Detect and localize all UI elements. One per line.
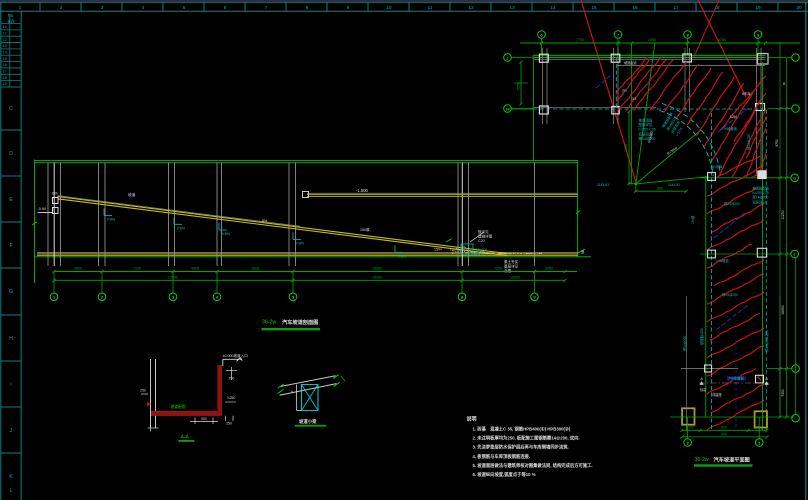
svg-text:标高: 标高: [700, 387, 706, 392]
svg-text:1.1: 1.1: [2, 31, 7, 35]
svg-text:3: 3: [758, 441, 760, 445]
svg-text:250: 250: [226, 422, 232, 426]
svg-text:1: 1: [19, 5, 22, 10]
svg-text:鄏14@200: 鄏14@200: [724, 201, 740, 206]
svg-text:h250: h250: [228, 396, 236, 400]
svg-text:4400: 4400: [191, 267, 199, 271]
svg-text:7600: 7600: [251, 267, 259, 271]
svg-text:I: I: [10, 382, 11, 388]
svg-text:12: 12: [468, 5, 474, 10]
svg-text:2050: 2050: [648, 38, 656, 42]
svg-text:16900: 16900: [372, 267, 382, 271]
svg-text:6: 6: [224, 5, 227, 10]
svg-text:J: J: [507, 56, 509, 60]
svg-text:±0.000坡道入口: ±0.000坡道入口: [223, 353, 249, 358]
svg-text:1.9: 1.9: [2, 82, 7, 86]
svg-text:2: 2: [687, 441, 689, 445]
svg-text:C20: C20: [478, 239, 485, 243]
svg-text:i=8%: i=8%: [398, 254, 407, 258]
svg-text:6. 坡道纵向坡度,弧度点于等10 %: 6. 坡道纵向坡度,弧度点于等10 %: [473, 471, 536, 478]
svg-text:坡道起点: 坡道起点: [624, 60, 638, 65]
svg-text:7%坡道板: 7%坡道板: [722, 126, 738, 131]
svg-text:6750: 6750: [718, 38, 726, 42]
svg-text:B车库: B车库: [742, 91, 751, 96]
svg-text:650: 650: [657, 187, 663, 191]
svg-text:h: h: [291, 390, 293, 394]
svg-text:15: 15: [591, 5, 597, 10]
svg-text:3050: 3050: [545, 267, 553, 271]
svg-text:4800: 4800: [74, 267, 82, 271]
svg-text:鄏14@200: 鄏14@200: [682, 335, 687, 351]
svg-text:1.6: 1.6: [2, 63, 7, 67]
svg-text:素土夯实: 素土夯实: [504, 259, 519, 264]
svg-text:基层详见: 基层详见: [504, 264, 519, 269]
svg-text:500: 500: [201, 417, 207, 421]
svg-text:鄏8: 鄏8: [622, 88, 627, 93]
svg-text:1. 砖基 混凝土C 35, 钢筋HPB400(①) HPB: 1. 砖基 混凝土C 35, 钢筋HPB400(①) HPB300(②): [473, 426, 571, 433]
svg-text:20: 20: [796, 5, 802, 10]
svg-text:说明: 说明: [467, 416, 477, 423]
svg-text:C: C: [9, 106, 13, 112]
svg-text:5: 5: [183, 5, 186, 10]
svg-text:16: 16: [632, 5, 638, 10]
svg-text:坡道板配筋: 坡道板配筋: [753, 186, 770, 191]
svg-text:h250: h250: [730, 115, 737, 119]
svg-text:36-2w: 36-2w: [262, 320, 276, 326]
svg-text:8: 8: [306, 5, 309, 10]
svg-text:1.35坡道: 1.35坡道: [716, 258, 729, 263]
svg-text:i=8%: i=8%: [107, 217, 116, 221]
svg-text:更改: 更改: [7, 19, 15, 24]
svg-text:鄏14@200双向: 鄏14@200双向: [764, 330, 769, 352]
svg-text:11250: 11250: [781, 210, 785, 219]
svg-text:4: 4: [142, 5, 145, 10]
svg-text:坡道配筋: 坡道配筋: [171, 404, 186, 409]
svg-text:9: 9: [347, 5, 350, 10]
svg-text:No.: No.: [8, 13, 15, 18]
svg-text:坡道顶板: 坡道顶板: [639, 118, 653, 123]
svg-text:5. 坡道面层做法与建筑师核对图集做法同, 结构完成后方可施: 5. 坡道面层做法与建筑师核对图集做法同, 结构完成后方可施工.: [473, 462, 593, 469]
svg-text:7: 7: [265, 5, 268, 10]
svg-text:G: G: [9, 289, 13, 295]
svg-text:7%坡道板: 7%坡道板: [728, 376, 744, 381]
svg-text:9: 9: [757, 33, 759, 37]
svg-text:鄏14@150: 鄏14@150: [746, 134, 751, 150]
svg-text:250: 250: [229, 377, 235, 381]
svg-text:250: 250: [140, 389, 146, 393]
svg-text:8: 8: [461, 296, 463, 300]
svg-text:8%: 8%: [52, 191, 58, 196]
svg-text:7700: 7700: [576, 38, 584, 42]
svg-text:1.2: 1.2: [2, 38, 7, 42]
svg-text:3. 先浇梦垫层防水保护层后再与车库侧墙同步浇筑.: 3. 先浇梦垫层防水保护层后再与车库侧墙同步浇筑.: [473, 444, 569, 451]
svg-text:鄏14@200: 鄏14@200: [722, 292, 738, 297]
svg-text:4: 4: [216, 296, 218, 300]
svg-text:13: 13: [509, 5, 515, 10]
svg-text:排水沟: 排水沟: [474, 252, 485, 257]
svg-text:300×300: 300×300: [474, 248, 487, 252]
svg-text:7250: 7250: [494, 267, 502, 271]
svg-text:120: 120: [688, 426, 694, 430]
svg-text:2. 未注明板厚均为250, 板配施工图钢筋鄏14@200,: 2. 未注明板厚均为250, 板配施工图钢筋鄏14@200, 双向.: [473, 435, 580, 442]
svg-text:B1车库: B1车库: [712, 164, 723, 169]
svg-text:2: 2: [60, 5, 63, 10]
svg-text:配筋详见: 配筋详见: [639, 122, 653, 127]
svg-text:1.7: 1.7: [2, 70, 7, 74]
svg-text:i=8%: i=8%: [222, 232, 231, 236]
svg-text:17: 17: [673, 5, 679, 10]
svg-text:1.0: 1.0: [2, 25, 7, 29]
svg-text:19: 19: [755, 5, 761, 10]
svg-text:-0.90: -0.90: [38, 207, 47, 211]
svg-text:900: 900: [721, 432, 727, 436]
svg-text:坡道小梁: 坡道小梁: [299, 418, 317, 425]
svg-text:H: H: [9, 336, 13, 342]
svg-text:i=8%: i=8%: [177, 226, 186, 230]
svg-text:1: 1: [53, 296, 55, 300]
svg-text:1%坡: 1%坡: [690, 215, 695, 224]
svg-text:16950: 16950: [781, 305, 785, 315]
svg-text:3: 3: [172, 296, 174, 300]
svg-text:1143.91: 1143.91: [597, 183, 609, 187]
svg-text:1.3: 1.3: [2, 44, 7, 48]
svg-text:8: 8: [686, 33, 688, 37]
svg-text:做法见: 做法见: [478, 229, 489, 234]
svg-text:4. 板钢筋与车库顶板钢筋连接.: 4. 板钢筋与车库顶板钢筋连接.: [473, 453, 531, 460]
svg-text:8%: 8%: [262, 219, 268, 223]
svg-text:D: D: [9, 151, 13, 157]
svg-text:详建施: 详建施: [712, 392, 722, 397]
svg-text:11: 11: [428, 5, 433, 10]
svg-text:汽车坡道剖面图: 汽车坡道剖面图: [282, 318, 318, 326]
svg-text:双层双向: 双层双向: [753, 199, 766, 204]
svg-text:A-A: A-A: [181, 435, 190, 441]
svg-text:坡道: 坡道: [128, 192, 136, 197]
svg-text:10300: 10300: [510, 275, 520, 279]
svg-text:2: 2: [101, 296, 103, 300]
svg-text:7350: 7350: [781, 389, 785, 397]
svg-text:3: 3: [101, 5, 104, 10]
svg-text:3400: 3400: [624, 144, 628, 152]
svg-text:建施详图: 建施详图: [478, 234, 493, 239]
svg-text:7: 7: [617, 33, 619, 37]
svg-text:3.5: 3.5: [632, 97, 637, 101]
svg-text:14: 14: [550, 5, 556, 10]
svg-text:总图: 总图: [504, 268, 512, 273]
svg-text:1143.91: 1143.91: [668, 183, 680, 187]
svg-text:-1.500: -1.500: [356, 188, 369, 193]
svg-text:650: 650: [721, 426, 727, 430]
svg-text:G: G: [793, 177, 796, 181]
svg-text:5: 5: [292, 296, 294, 300]
svg-text:6: 6: [540, 33, 542, 37]
svg-text:1.4: 1.4: [2, 50, 7, 54]
svg-text:F: F: [9, 243, 12, 249]
svg-text:150厚: 150厚: [360, 227, 370, 232]
svg-text:150×: 150×: [434, 248, 442, 252]
svg-text:7100: 7100: [133, 267, 141, 271]
svg-text:9: 9: [533, 296, 535, 300]
svg-text:1.5: 1.5: [2, 57, 7, 61]
svg-text:16900: 16900: [372, 275, 382, 279]
svg-text:36-2w: 36-2w: [695, 457, 709, 463]
svg-text:鄏14@200: 鄏14@200: [753, 195, 769, 200]
svg-text:坡道板h250: 坡道板h250: [699, 328, 704, 345]
svg-text:i=8%: i=8%: [296, 241, 305, 245]
svg-text:汽车坡道平面图: 汽车坡道平面图: [714, 456, 750, 464]
svg-text:h=250 C35: h=250 C35: [753, 191, 769, 195]
svg-text:10: 10: [386, 5, 392, 10]
svg-text:h=250 C35: h=250 C35: [639, 128, 656, 132]
svg-text:1.8: 1.8: [2, 76, 7, 80]
svg-text:9750: 9750: [775, 139, 779, 147]
svg-text:L: L: [10, 488, 13, 494]
